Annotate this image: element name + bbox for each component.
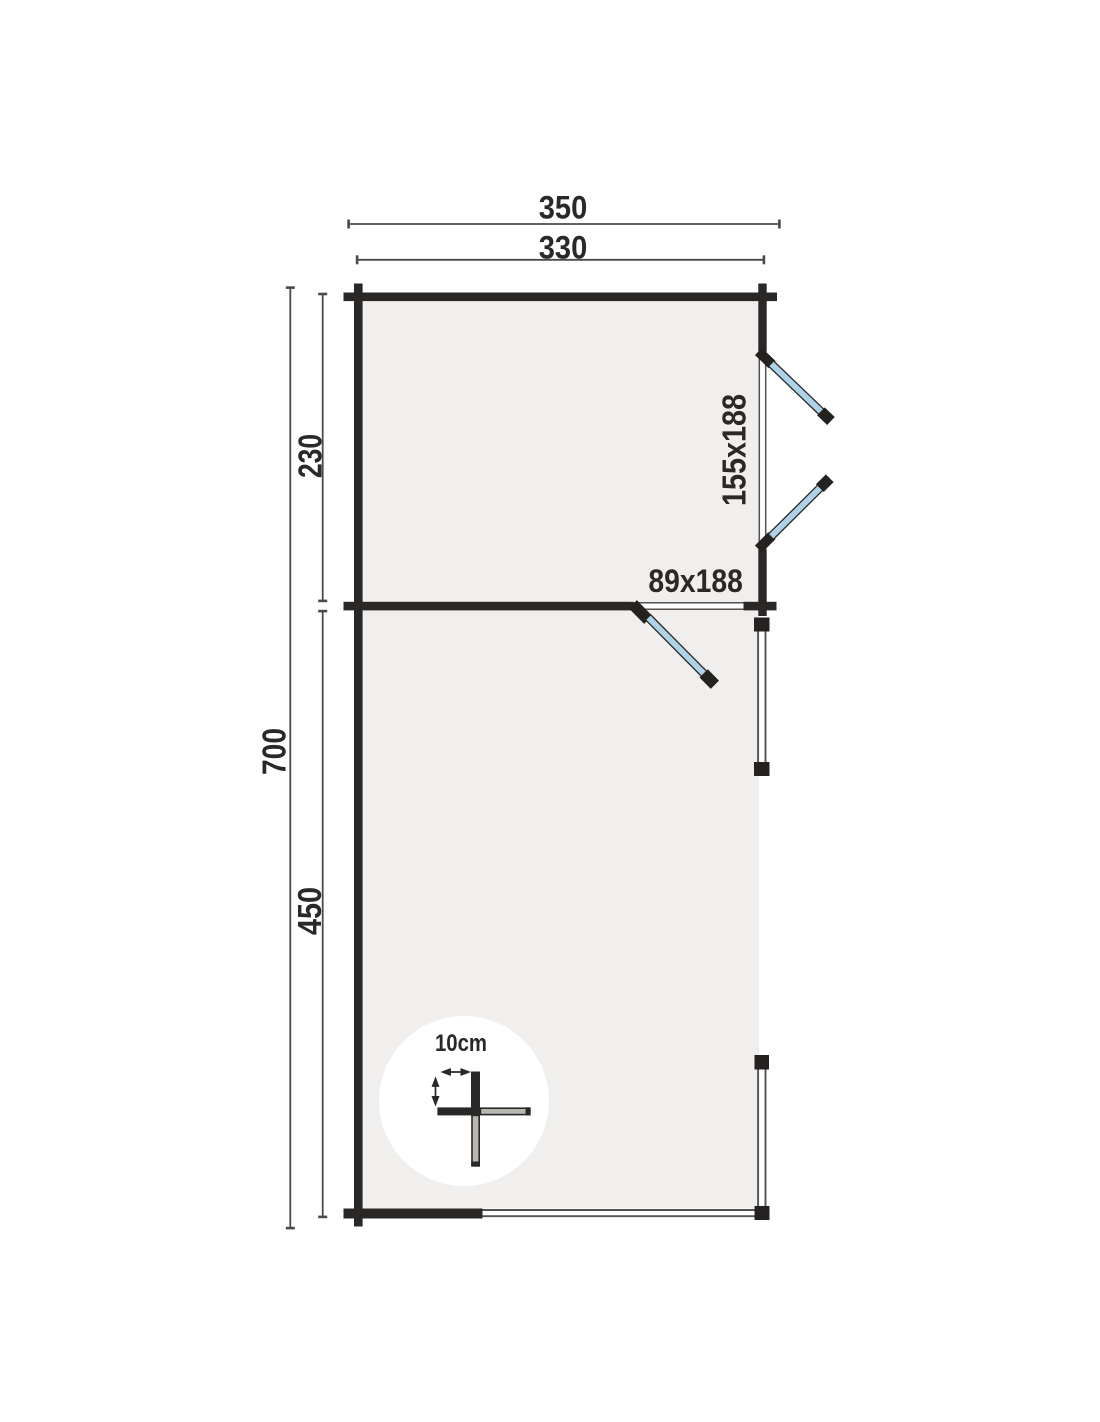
svg-text:230: 230 — [293, 434, 330, 478]
svg-text:450: 450 — [292, 887, 329, 935]
svg-text:700: 700 — [256, 728, 293, 775]
svg-text:350: 350 — [539, 189, 588, 225]
svg-text:155x188: 155x188 — [717, 394, 754, 506]
svg-text:330: 330 — [539, 230, 588, 266]
svg-text:10cm: 10cm — [435, 1030, 487, 1057]
svg-text:89x188: 89x188 — [648, 563, 743, 599]
